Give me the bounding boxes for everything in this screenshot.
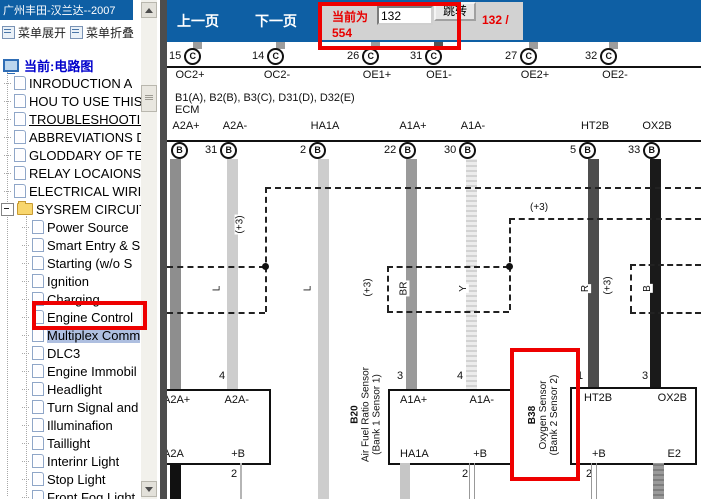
- computer-icon: [3, 59, 19, 72]
- sidebar-item-smart-entry[interactable]: Smart Entry & S: [0, 236, 141, 254]
- device-box-b38: HT2B OX2B +B E2: [570, 387, 697, 465]
- shield-line: [509, 218, 701, 220]
- document-icon: [32, 328, 44, 342]
- tree-connector: [4, 155, 11, 156]
- document-icon: [32, 472, 44, 486]
- ecm-pin-2b: 2B: [300, 141, 326, 159]
- box-terminal: OX2B: [658, 392, 687, 404]
- wire-color-label: B: [642, 284, 653, 293]
- menu-buttons-row: 菜单展开 菜单折叠: [2, 22, 142, 42]
- sidebar-item-label: HOU TO USE THIS: [29, 94, 141, 109]
- tree-root-label: 当前:电路图: [24, 56, 93, 74]
- ecm-bus-line-bottom: [167, 140, 701, 142]
- terminal-label: A1A+: [399, 120, 426, 132]
- wire-color-label: Y: [458, 284, 469, 293]
- scroll-down-button[interactable]: [141, 481, 157, 497]
- terminal-label: OE1+: [363, 69, 391, 81]
- sidebar-item-relay-locations[interactable]: RELAY LOCAIONS: [0, 164, 141, 182]
- terminal-label: OC2-: [264, 69, 290, 81]
- sidebar-item-label: Front Fog Light: [47, 490, 135, 499]
- document-icon: [14, 130, 26, 144]
- tree-connector: [22, 317, 29, 318]
- shield-line: [167, 266, 265, 268]
- document-icon: [14, 94, 26, 108]
- sidebar-item-glossary[interactable]: GLODDARY OF TER: [0, 146, 141, 164]
- sidebar-item-label: Smart Entry & S: [47, 238, 140, 253]
- wire-ha1a: [318, 159, 329, 499]
- document-icon: [14, 166, 26, 180]
- tree-connector: [22, 497, 29, 498]
- shield-junction-dot: [262, 263, 269, 270]
- box-terminal: A2A: [167, 448, 184, 460]
- device-pin-number: 4: [457, 370, 463, 382]
- document-icon: [32, 382, 44, 396]
- wire-color-label: BR: [398, 281, 409, 297]
- sidebar-item-stop-light[interactable]: Stop Light: [0, 470, 141, 488]
- main-pane: 上一页 下一页 当前为 跳转 132 / 554 15C 14C 26C 31C…: [167, 0, 701, 499]
- wire-ox2b: [650, 159, 661, 388]
- shield-line: [630, 312, 701, 314]
- document-icon: [32, 346, 44, 360]
- sidebar-item-label: Ignition: [47, 274, 89, 289]
- ecm-connector-codes: B1(A), B2(B), B3(C), D31(D), D32(E): [175, 92, 355, 104]
- menu-collapse-label: 菜单折叠: [86, 24, 134, 41]
- document-icon: [32, 256, 44, 270]
- sidebar-item-label: Taillight: [47, 436, 90, 451]
- sidebar-highlight-box: [32, 301, 147, 330]
- collapse-expander-icon[interactable]: [1, 203, 14, 216]
- menu-collapse-button[interactable]: 菜单折叠: [70, 24, 134, 41]
- wire-color-label: L: [211, 285, 222, 293]
- wire-below-box: [596, 463, 597, 499]
- document-icon: [32, 418, 44, 432]
- sidebar: 广州丰田-汉兰达--2007 菜单展开 菜单折叠 当前:电路图 INRODUCT…: [0, 0, 160, 499]
- ecm-pin-5b: 5B: [570, 141, 596, 159]
- sidebar-item-ignition[interactable]: Ignition: [0, 272, 141, 290]
- scrollbar-thumb[interactable]: [141, 85, 157, 112]
- document-icon: [32, 238, 44, 252]
- shield-line: [265, 187, 267, 312]
- tree-connector: [4, 83, 11, 84]
- document-icon: [32, 436, 44, 450]
- sidebar-item-electrical-wiring[interactable]: ELECTRICAL WIRII: [0, 182, 141, 200]
- wire-color-label: R: [580, 284, 591, 293]
- menu-expand-label: 菜单展开: [18, 24, 66, 41]
- next-page-button[interactable]: 下一页: [255, 11, 297, 31]
- device-box-b20: A1A+ A1A- HA1A +B: [388, 389, 512, 465]
- wire-below-box: [170, 463, 181, 499]
- sidebar-item-label: Power Source: [47, 220, 129, 235]
- sidebar-item-label: RELAY LOCAIONS: [29, 166, 141, 181]
- device-box-a2a: A2A+ A2A- A2A +B: [167, 389, 271, 465]
- sidebar-item-label: Starting (w/o S: [47, 256, 132, 271]
- wire-a2a-minus: [227, 159, 238, 390]
- arrow-down-icon: [145, 487, 153, 492]
- tree-connector: [22, 353, 29, 354]
- device-pin-number: 3: [397, 370, 403, 382]
- wire-below-box: [400, 463, 410, 499]
- sidebar-item-label: Engine Immobil: [47, 364, 137, 379]
- device-name: Air Fuel Ratio Sensor: [361, 367, 372, 462]
- sidebar-item-troubleshooting[interactable]: TROUBLESHOOTIN: [0, 110, 141, 128]
- window-title: 广州丰田-汉兰达--2007: [0, 0, 133, 20]
- wire-below-box: [240, 463, 242, 499]
- sidebar-item-interior-light[interactable]: Interinr Light: [0, 452, 141, 470]
- tree-connector: [22, 371, 29, 372]
- tree-connector: [4, 137, 11, 138]
- prev-page-button[interactable]: 上一页: [177, 11, 219, 31]
- document-icon: [14, 184, 26, 198]
- ewd-viewer-window: { "window": { "title": "广州丰田-汉兰达--2007" …: [0, 0, 701, 499]
- sidebar-item-dlc3[interactable]: DLC3: [0, 344, 141, 362]
- tree-connector: [22, 263, 29, 264]
- document-icon: [32, 364, 44, 378]
- device-pin-number: 2: [462, 468, 468, 480]
- wire-a1a-plus: [406, 159, 417, 390]
- wire-below-box: [469, 463, 470, 499]
- shield-junction-dot: [506, 263, 513, 270]
- terminal-label: OC2+: [175, 69, 204, 81]
- sidebar-item-starting[interactable]: Starting (w/o S: [0, 254, 141, 272]
- box-terminal: +B: [592, 448, 606, 460]
- tree-connector: [22, 389, 29, 390]
- terminal-label: OE1-: [426, 69, 452, 81]
- tree-connector: [22, 461, 29, 462]
- toolbar-highlight-box: [318, 2, 461, 50]
- tree-connector: [22, 479, 29, 480]
- shield-ref-label: (+3): [363, 277, 374, 297]
- box-terminal: HT2B: [584, 392, 612, 404]
- tree-connector: [4, 191, 11, 192]
- document-icon: [32, 400, 44, 414]
- device-pin-number: 2: [231, 468, 237, 480]
- sidebar-item-label: TROUBLESHOOTIN: [29, 112, 141, 127]
- sidebar-scrollbar[interactable]: [141, 0, 157, 499]
- ecm-pin-15c: 15C: [169, 47, 201, 65]
- wire-a2a-plus: [170, 159, 181, 390]
- box-terminal: A2A-: [225, 394, 249, 406]
- ecm-pin-14c: 14C: [252, 47, 284, 65]
- shield-line: [265, 187, 701, 189]
- sidebar-item-headlight[interactable]: Headlight: [0, 380, 141, 398]
- document-icon: [32, 274, 44, 288]
- wire-ht2b: [588, 159, 599, 388]
- device-name-b20: B20 Air Fuel Ratio Sensor (Bank 1 Sensor…: [350, 359, 385, 471]
- tree-connector: [4, 173, 11, 174]
- sidebar-item-illumination[interactable]: Illuminafion: [0, 416, 141, 434]
- terminal-label: HA1A: [311, 120, 340, 132]
- tree-root-node[interactable]: 当前:电路图: [0, 56, 141, 74]
- shield-ref-label: (+3): [530, 202, 548, 213]
- sidebar-item-label: Interinr Light: [47, 454, 119, 469]
- tree-connector: [22, 245, 29, 246]
- wire-below-box: [591, 463, 592, 499]
- sidebar-item-introduction[interactable]: INRODUCTION A: [0, 74, 141, 92]
- box-terminal: HA1A: [400, 448, 429, 460]
- ecm-label: ECM: [175, 104, 199, 116]
- tree-connector: [22, 335, 29, 336]
- terminal-label: A2A+: [172, 120, 199, 132]
- wire-a1a-minus: [466, 159, 477, 390]
- sidebar-item-label: Turn Signal and: [47, 400, 138, 415]
- box-terminal: +B: [231, 448, 245, 460]
- tree-connector: [22, 425, 29, 426]
- shield-line: [387, 311, 509, 313]
- terminal-label: OE2-: [602, 69, 628, 81]
- device-id: B20: [350, 405, 361, 423]
- tree-connector: [4, 101, 11, 102]
- sidebar-item-label: GLODDARY OF TER: [29, 148, 141, 163]
- wiring-diagram: 15C 14C 26C 31C 27C 32C OC2+ OC2- OE1+ O…: [167, 42, 701, 499]
- box-terminal: A2A+: [167, 394, 190, 406]
- sidebar-item-label: ABBREVIATIONS D: [29, 130, 141, 145]
- sidebar-item-label: INRODUCTION A: [29, 76, 132, 91]
- sidebar-item-label: DLC3: [47, 346, 80, 361]
- document-icon: [32, 490, 44, 499]
- tree-connector: [22, 281, 29, 282]
- box-terminal: A1A+: [400, 394, 427, 406]
- shield-line: [630, 264, 632, 312]
- ecm-bus-line-top: [167, 66, 701, 68]
- sidebar-item-how-to-use[interactable]: HOU TO USE THIS: [0, 92, 141, 110]
- page-fraction-label: 132 /: [482, 13, 509, 27]
- sidebar-folder-system-circuits[interactable]: SYSREM CIRCUITS: [0, 200, 141, 218]
- navigation-tree: 当前:电路图 INRODUCTION A HOU TO USE THIS TRO…: [0, 56, 141, 499]
- box-terminal: A1A-: [470, 394, 494, 406]
- shield-line: [387, 266, 389, 311]
- menu-expand-button[interactable]: 菜单展开: [2, 24, 66, 41]
- shield-ref-label: (+3): [235, 214, 246, 234]
- shield-line: [630, 264, 701, 266]
- document-icon: [14, 148, 26, 162]
- terminal-label: OX2B: [642, 120, 671, 132]
- document-icon: [32, 220, 44, 234]
- document-icon: [14, 76, 26, 90]
- ecm-pin-b: B: [168, 141, 188, 159]
- device-pin-number: 3: [642, 370, 648, 382]
- diagram-highlight-box: [510, 348, 580, 481]
- ecm-pin-30b: 30B: [444, 141, 476, 159]
- sidebar-item-label: Stop Light: [47, 472, 106, 487]
- sidebar-item-turn-signal[interactable]: Turn Signal and: [0, 398, 141, 416]
- tree-connector: [4, 119, 11, 120]
- ecm-pin-32c: 32C: [585, 47, 617, 65]
- device-pin-number: 4: [219, 370, 225, 382]
- sidebar-item-label: Illuminafion: [47, 418, 113, 433]
- shield-ref-label: (+3): [603, 275, 614, 295]
- document-icon: [32, 454, 44, 468]
- ecm-pin-31b: 31B: [205, 141, 237, 159]
- tree-connector: [22, 407, 29, 408]
- collapse-tree-icon: [70, 26, 83, 39]
- sidebar-item-taillight[interactable]: Taillight: [0, 434, 141, 452]
- open-folder-icon: [17, 203, 33, 215]
- box-terminal: +B: [473, 448, 487, 460]
- device-subname: (Bank 1 Sensor 1): [372, 374, 383, 455]
- wire-color-label: L: [302, 285, 313, 293]
- sidebar-item-front-fog-light[interactable]: Front Fog Light: [0, 488, 141, 499]
- terminal-label: HT2B: [581, 120, 609, 132]
- shield-line: [387, 266, 509, 268]
- expand-tree-icon: [2, 26, 15, 39]
- tree-connector: [22, 443, 29, 444]
- wire-below-box: [474, 463, 475, 499]
- terminal-label: OE2+: [521, 69, 549, 81]
- sidebar-item-label: ELECTRICAL WIRII: [29, 184, 141, 199]
- sidebar-item-label: Headlight: [47, 382, 102, 397]
- shield-line: [167, 312, 265, 314]
- sidebar-item-engine-immobiliser[interactable]: Engine Immobil: [0, 362, 141, 380]
- tree-connector: [22, 227, 29, 228]
- terminal-label: A2A-: [223, 120, 247, 132]
- sidebar-item-abbreviations[interactable]: ABBREVIATIONS D: [0, 128, 141, 146]
- pane-splitter[interactable]: [160, 0, 167, 499]
- scroll-up-button[interactable]: [141, 2, 157, 18]
- sidebar-folder-label: SYSREM CIRCUITS: [36, 202, 141, 217]
- ecm-pin-27c: 27C: [505, 47, 537, 65]
- ecm-pin-33b: 33B: [628, 141, 660, 159]
- box-terminal: E2: [668, 448, 681, 460]
- terminal-label: A1A-: [461, 120, 485, 132]
- arrow-up-icon: [145, 8, 153, 13]
- ecm-pin-22b: 22B: [384, 141, 416, 159]
- tree-connector: [22, 299, 29, 300]
- document-icon: [14, 112, 26, 126]
- sidebar-item-power-source[interactable]: Power Source: [0, 218, 141, 236]
- wire-below-box: [653, 463, 664, 499]
